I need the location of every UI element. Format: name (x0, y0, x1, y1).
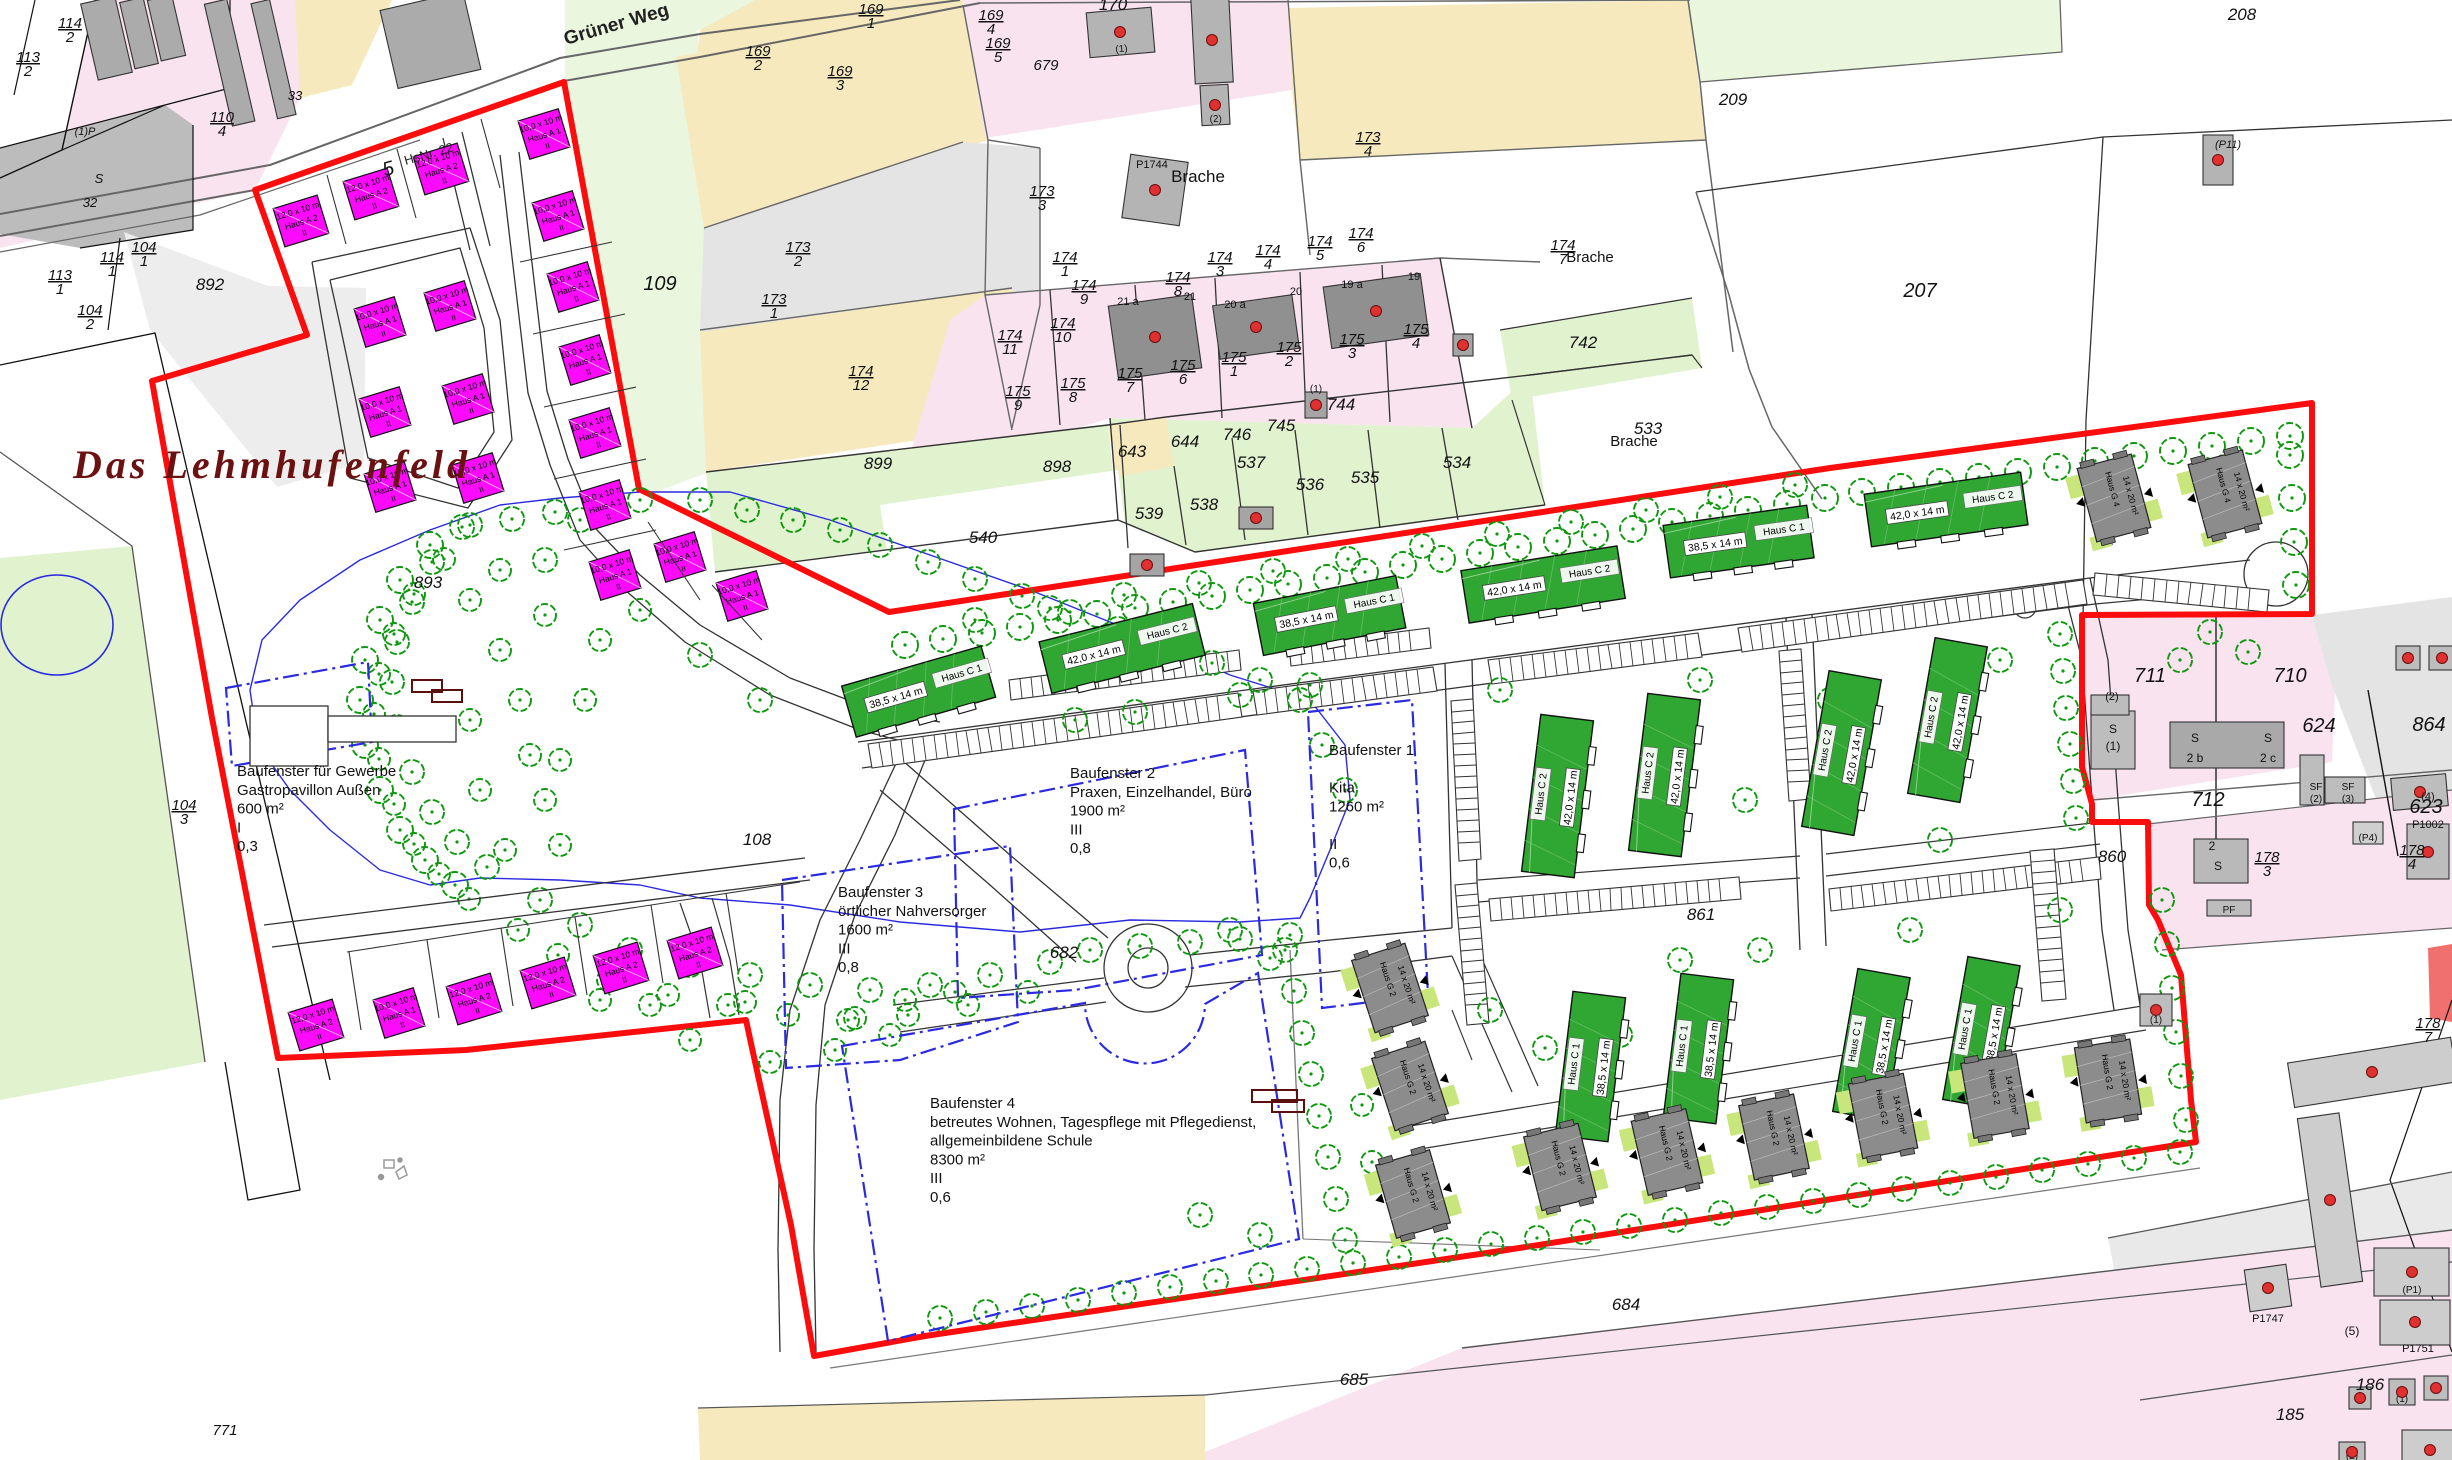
svg-text:S: S (2214, 859, 2222, 873)
svg-text:(1): (1) (2106, 739, 2121, 753)
svg-text:1: 1 (140, 253, 148, 270)
svg-text:III: III (1070, 821, 1083, 838)
svg-text:771: 771 (212, 1422, 237, 1439)
svg-text:539: 539 (1135, 504, 1164, 523)
svg-text:186: 186 (2356, 1375, 2385, 1394)
svg-text:(1)P: (1)P (75, 126, 96, 138)
svg-text:(2): (2) (2105, 691, 2118, 703)
svg-text:Praxen, Einzelhandel, Büro: Praxen, Einzelhandel, Büro (1070, 784, 1252, 801)
svg-text:Baufenster für Gewerbe: Baufenster für Gewerbe (237, 763, 396, 780)
svg-text:0,8: 0,8 (1070, 840, 1091, 857)
svg-text:207: 207 (1902, 280, 1937, 302)
svg-text:2 b: 2 b (2187, 751, 2204, 765)
svg-text:3: 3 (1216, 263, 1225, 280)
svg-text:(P4): (P4) (2359, 833, 2378, 844)
svg-text:892: 892 (196, 275, 225, 294)
svg-text:8300 m²: 8300 m² (930, 1151, 985, 1168)
svg-text:1260 m²: 1260 m² (1329, 798, 1384, 815)
svg-text:2: 2 (85, 316, 95, 333)
svg-text:12: 12 (853, 377, 870, 394)
svg-text:Baufenster 2: Baufenster 2 (1070, 765, 1155, 782)
svg-text:745: 745 (1267, 416, 1296, 435)
svg-text:712: 712 (2191, 789, 2224, 811)
svg-text:Gastropavillon Außen: Gastropavillon Außen (237, 782, 380, 799)
svg-text:624: 624 (2302, 715, 2335, 737)
svg-text:185: 185 (2276, 1405, 2305, 1424)
svg-text:0,8: 0,8 (838, 959, 859, 976)
svg-text:(1): (1) (2150, 1015, 2162, 1026)
svg-text:(2): (2) (2310, 794, 2322, 805)
svg-text:20 a: 20 a (1224, 299, 1246, 311)
svg-text:537: 537 (1237, 453, 1266, 472)
svg-text:1: 1 (108, 263, 116, 280)
svg-text:Das Lehmhufenfeld: Das Lehmhufenfeld (72, 442, 471, 487)
svg-text:2: 2 (1284, 353, 1294, 370)
svg-text:(1): (1) (1310, 384, 1322, 395)
svg-text:örtlicher Nahversorger: örtlicher Nahversorger (838, 903, 986, 920)
svg-text:4: 4 (1364, 143, 1372, 160)
svg-text:8: 8 (1069, 389, 1078, 406)
svg-text:4: 4 (1264, 256, 1272, 273)
svg-text:Brache: Brache (1171, 167, 1225, 186)
svg-text:644: 644 (1171, 432, 1199, 451)
svg-text:2: 2 (753, 57, 763, 74)
svg-text:3: 3 (1038, 197, 1047, 214)
svg-text:S: S (2109, 722, 2117, 736)
svg-text:6: 6 (1179, 371, 1188, 388)
svg-text:744: 744 (1327, 395, 1355, 414)
svg-text:6: 6 (1357, 239, 1366, 256)
svg-text:11: 11 (1002, 341, 1018, 358)
svg-text:1600 m²: 1600 m² (838, 922, 893, 939)
svg-text:2 c: 2 c (2260, 751, 2276, 765)
svg-text:33: 33 (288, 88, 303, 103)
svg-text:8: 8 (1174, 283, 1183, 300)
svg-text:538: 538 (1190, 495, 1219, 514)
svg-text:893: 893 (414, 573, 443, 592)
svg-text:5: 5 (994, 49, 1003, 66)
svg-text:2: 2 (2209, 839, 2216, 853)
svg-text:2: 2 (65, 29, 75, 46)
svg-text:1: 1 (1230, 363, 1238, 380)
svg-text:864: 864 (2412, 714, 2445, 736)
svg-text:540: 540 (969, 528, 998, 547)
svg-text:SF: SF (2310, 782, 2323, 793)
svg-text:II: II (1329, 836, 1337, 853)
svg-text:1: 1 (1061, 263, 1069, 280)
svg-text:19: 19 (1408, 271, 1420, 283)
svg-text:711: 711 (2134, 665, 2166, 687)
svg-text:Baufenster 4: Baufenster 4 (930, 1095, 1015, 1112)
svg-text:0,6: 0,6 (930, 1189, 951, 1206)
svg-text:600 m²: 600 m² (237, 801, 284, 818)
svg-text:685: 685 (1340, 1370, 1369, 1389)
svg-text:3: 3 (1348, 345, 1357, 362)
svg-text:S: S (2264, 731, 2272, 745)
svg-text:(P1): (P1) (2403, 1285, 2422, 1296)
svg-text:3: 3 (180, 811, 189, 828)
svg-text:9: 9 (1080, 291, 1089, 308)
svg-text:21: 21 (1184, 291, 1196, 303)
svg-text:170: 170 (1099, 0, 1128, 14)
svg-text:208: 208 (2227, 5, 2257, 24)
svg-text:III: III (838, 940, 851, 957)
svg-text:(P11): (P11) (2215, 139, 2241, 151)
svg-text:209: 209 (1718, 90, 1748, 109)
svg-text:I: I (237, 819, 241, 836)
svg-text:3: 3 (2263, 863, 2272, 880)
svg-text:Brache: Brache (1566, 249, 1614, 266)
svg-text:III: III (930, 1170, 943, 1187)
svg-text:1900 m²: 1900 m² (1070, 803, 1125, 820)
svg-text:4: 4 (218, 123, 226, 140)
svg-text:10: 10 (1055, 329, 1072, 346)
svg-text:2: 2 (793, 253, 803, 270)
svg-text:1: 1 (867, 15, 875, 32)
svg-text:7: 7 (1126, 379, 1135, 396)
svg-text:643: 643 (1118, 442, 1147, 461)
svg-text:allgemeinbildene Schule: allgemeinbildene Schule (930, 1133, 1093, 1150)
svg-text:P1744: P1744 (1136, 159, 1168, 171)
svg-text:861: 861 (1687, 905, 1715, 924)
svg-text:1: 1 (56, 281, 64, 298)
svg-text:19 a: 19 a (1341, 279, 1363, 291)
svg-text:860: 860 (2098, 847, 2127, 866)
svg-text:7: 7 (2424, 1029, 2433, 1046)
svg-text:623: 623 (2409, 796, 2442, 818)
svg-text:4: 4 (2408, 856, 2416, 873)
svg-text:P1751: P1751 (2402, 1343, 2434, 1355)
svg-text:535: 535 (1351, 468, 1380, 487)
svg-text:(2): (2) (1209, 114, 1222, 126)
svg-text:SF: SF (2342, 782, 2355, 793)
svg-text:Baufenster 1: Baufenster 1 (1329, 742, 1414, 759)
svg-text:(1): (1) (1115, 43, 1128, 55)
svg-text:742: 742 (1569, 333, 1598, 352)
svg-text:3: 3 (836, 77, 845, 94)
svg-text:898: 898 (1043, 457, 1072, 476)
svg-text:(5): (5) (2345, 1324, 2360, 1338)
svg-text:P1747: P1747 (2252, 1313, 2284, 1325)
svg-text:534: 534 (1443, 453, 1471, 472)
svg-text:9: 9 (1014, 397, 1023, 414)
svg-text:betreutes Wohnen, Tagespflege: betreutes Wohnen, Tagespflege mit Pflege… (930, 1114, 1256, 1131)
svg-text:Kita: Kita (1329, 780, 1356, 797)
svg-text:1: 1 (770, 305, 778, 322)
svg-text:S: S (2191, 731, 2199, 745)
svg-text:899: 899 (864, 454, 893, 473)
svg-text:710: 710 (2273, 665, 2306, 687)
svg-text:21 a: 21 a (1117, 296, 1139, 308)
svg-text:5: 5 (1316, 247, 1325, 264)
svg-text:0,3: 0,3 (237, 838, 258, 855)
svg-text:32: 32 (83, 195, 98, 210)
svg-text:4: 4 (1412, 335, 1420, 352)
svg-text:(3): (3) (2342, 794, 2354, 805)
svg-text:S: S (95, 171, 104, 186)
svg-text:PF: PF (2223, 905, 2236, 916)
svg-text:679: 679 (1033, 57, 1059, 74)
svg-text:746: 746 (1223, 425, 1252, 444)
svg-text:0,6: 0,6 (1329, 855, 1350, 872)
svg-text:108: 108 (743, 830, 772, 849)
svg-text:Baufenster 3: Baufenster 3 (838, 884, 923, 901)
svg-text:109: 109 (643, 273, 676, 295)
svg-text:Brache: Brache (1610, 433, 1658, 450)
svg-text:536: 536 (1296, 475, 1325, 494)
svg-text:684: 684 (1612, 1295, 1640, 1314)
svg-text:2: 2 (23, 63, 33, 80)
svg-text:682: 682 (1050, 943, 1079, 962)
svg-text:20: 20 (1290, 286, 1302, 298)
svg-text:P1002: P1002 (2412, 819, 2444, 831)
